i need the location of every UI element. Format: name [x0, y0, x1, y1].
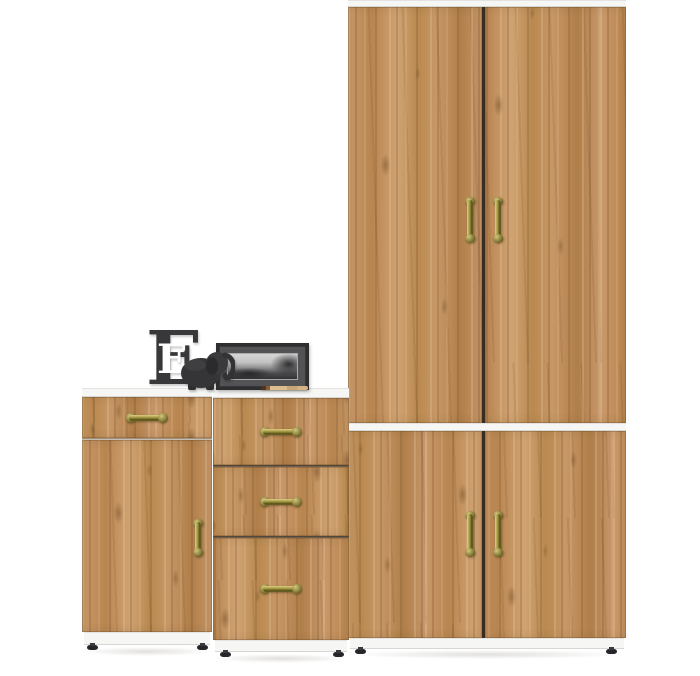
wardrobe-lower-right-door	[485, 431, 626, 638]
wardrobe-top-trim	[348, 0, 626, 7]
handle-cap	[465, 548, 475, 557]
wardrobe-upper-section	[348, 7, 626, 423]
decor-elephant-figurine	[179, 349, 235, 391]
wardrobe-upper-right-door	[485, 7, 626, 423]
cabinet-door-handle	[193, 519, 203, 557]
handle-cap	[292, 497, 302, 507]
cabinet-door	[82, 440, 212, 632]
elephant-figurine-drawing	[179, 349, 235, 391]
chest-floor-shadow	[213, 654, 349, 663]
wardrobe-lower-left-door-handle	[465, 511, 475, 557]
chest-drawer-3	[213, 538, 349, 640]
handle-cap	[292, 584, 302, 594]
wardrobe-lower-left-door	[348, 431, 482, 638]
decor-pencil	[261, 386, 308, 390]
cabinet-drawer	[82, 397, 212, 438]
wardrobe-base-plinth	[350, 638, 624, 649]
cabinet-drawer-handle	[126, 413, 168, 423]
drawer-chest	[213, 388, 349, 652]
cabinet-floor-shadow	[82, 647, 212, 656]
handle-cap	[158, 413, 168, 423]
chest-drawer-1	[213, 398, 349, 465]
product-photo: E E	[0, 0, 700, 676]
handle-cap	[193, 548, 203, 557]
cabinet-base-plinth	[84, 632, 210, 645]
wardrobe	[348, 0, 626, 650]
wardrobe-upper-left-door	[348, 7, 482, 423]
small-cabinet	[82, 388, 212, 645]
chest-base-plinth	[215, 640, 347, 652]
chest-drawer-2-handle	[260, 497, 302, 507]
wardrobe-middle-trim	[348, 423, 626, 431]
wardrobe-floor-shadow	[348, 650, 626, 659]
handle-cap	[493, 548, 503, 557]
handle-cap	[493, 234, 503, 243]
handle-cap	[465, 234, 475, 243]
photo-frame-landscape-photo	[227, 353, 298, 380]
handle-cap	[292, 427, 302, 437]
chest-drawer-2	[213, 467, 349, 536]
chest-drawer-3-handle	[260, 584, 302, 594]
wardrobe-lower-right-door-handle	[493, 511, 503, 557]
wardrobe-lower-section	[348, 431, 626, 638]
wardrobe-upper-right-door-handle	[493, 197, 503, 243]
chest-drawer-1-handle	[260, 427, 302, 437]
wardrobe-upper-left-door-handle	[465, 197, 475, 243]
